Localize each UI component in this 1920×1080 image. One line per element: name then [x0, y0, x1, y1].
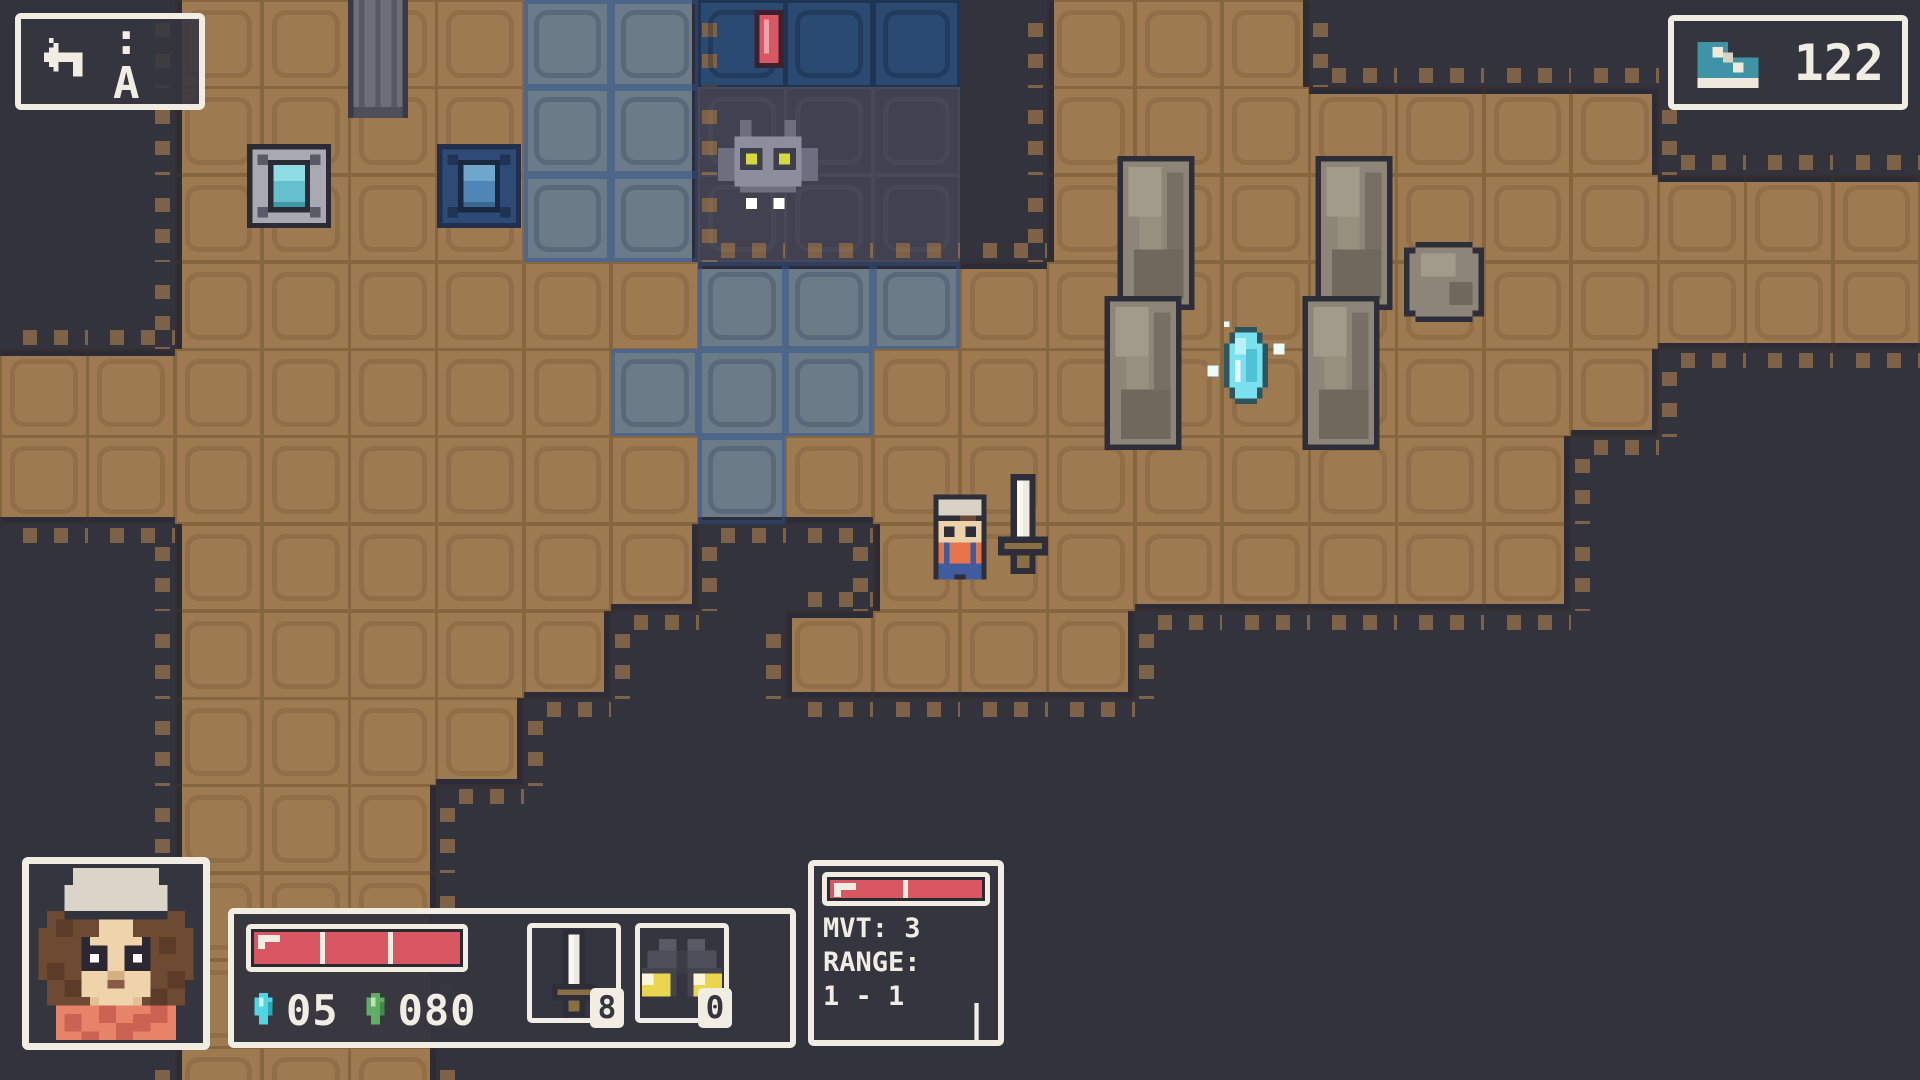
undo-hint-box[interactable]: : A [15, 13, 205, 110]
shoe-icon [1692, 37, 1764, 88]
player-portrait [30, 868, 202, 1040]
panel-cursor: | [965, 1000, 988, 1038]
sword-slot-badge: 8 [590, 988, 624, 1028]
game-viewport: : A 122 [0, 0, 1920, 1080]
steps-counter-box: 122 [1668, 15, 1908, 110]
undo-arrow-icon [39, 38, 97, 86]
plate-teal-sprite[interactable] [247, 144, 331, 228]
resource-counters: 05 080 [250, 990, 476, 1032]
sword-item-sprite[interactable] [998, 474, 1048, 574]
enemy-health-bar [822, 872, 990, 906]
plate-blue-sprite[interactable] [437, 144, 521, 228]
player-portrait-box[interactable] [22, 857, 210, 1050]
enemy-range-label: RANGE: [823, 946, 921, 980]
health-segment-divider [388, 932, 393, 964]
enemy-range-value: 1 - 1 [823, 980, 921, 1014]
boulder-sprite [1398, 242, 1490, 322]
health-segment-divider [320, 932, 325, 964]
item-slot-sword[interactable]: 8 [527, 923, 621, 1023]
enemy-movement-stat: MVT: 3 [823, 912, 921, 946]
rock-sprite [1297, 296, 1385, 450]
enemy-info-panel: MVT: 3 RANGE: 1 - 1 | [808, 860, 1004, 1046]
rock-sprite [1099, 296, 1187, 450]
bat-sprite[interactable] [718, 120, 818, 209]
steps-count: 122 [1794, 38, 1884, 88]
item-slot-binoculars[interactable]: 0 [635, 923, 729, 1023]
cyan-gem-icon [250, 993, 277, 1029]
player-sprite[interactable] [928, 489, 992, 585]
player-status-panel: 05 080 [228, 908, 796, 1048]
green-gem-icon [362, 993, 389, 1029]
rock-sprite [1112, 156, 1200, 310]
undo-key-label: : A [113, 18, 181, 106]
rock-sprite [1310, 156, 1398, 310]
red-marker-sprite [754, 10, 784, 68]
health-segment-divider [903, 880, 908, 898]
enemy-stats: MVT: 3 RANGE: 1 - 1 [823, 912, 921, 1014]
player-health-bar [246, 924, 468, 972]
binoculars-slot-badge: 0 [698, 988, 732, 1028]
cyan-gem-count: 05 [286, 990, 339, 1032]
green-gem-count: 080 [398, 990, 477, 1032]
crystal-sprite[interactable] [1202, 316, 1290, 415]
pillar-sprite [348, 0, 408, 118]
